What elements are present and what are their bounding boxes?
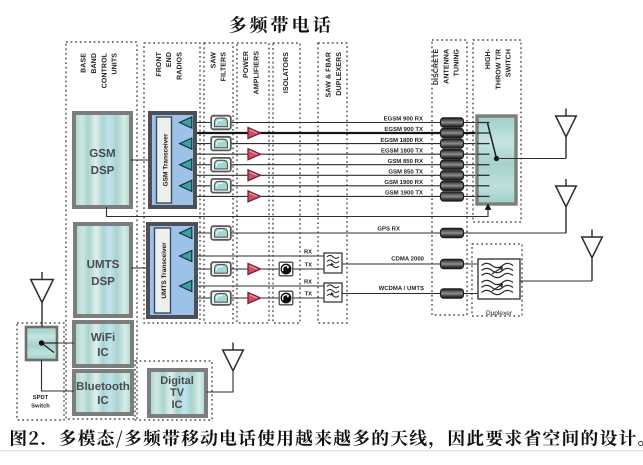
svg-text:GSM 850 RX: GSM 850 RX xyxy=(388,158,423,165)
svg-text:GPS RX: GPS RX xyxy=(377,226,400,233)
svg-text:GSM: GSM xyxy=(89,147,115,160)
svg-text:IC: IC xyxy=(172,399,183,411)
svg-text:EGSM 1800 RX: EGSM 1800 RX xyxy=(380,137,423,144)
svg-text:DSP: DSP xyxy=(91,275,115,288)
svg-text:UMTS: UMTS xyxy=(87,258,120,271)
svg-text:UMTS Transceiver: UMTS Transceiver xyxy=(161,242,168,299)
svg-text:ISOLATORS: ISOLATORS xyxy=(283,52,290,93)
svg-text:GSM 1900 TX: GSM 1900 TX xyxy=(385,190,423,197)
svg-text:TX: TX xyxy=(305,262,313,268)
svg-text:RX: RX xyxy=(304,279,312,285)
svg-text:EGSM 900 RX: EGSM 900 RX xyxy=(384,116,423,123)
svg-text:Duplexer: Duplexer xyxy=(486,310,513,317)
svg-text:WCDMA / UMTS: WCDMA / UMTS xyxy=(379,285,424,292)
svg-text:Switch: Switch xyxy=(31,403,50,410)
svg-text:SPDT: SPDT xyxy=(33,394,49,401)
svg-text:IC: IC xyxy=(97,394,109,407)
svg-text:EGSM 1800 TX: EGSM 1800 TX xyxy=(381,147,423,154)
svg-text:GSM Transceiver: GSM Transceiver xyxy=(163,133,170,186)
svg-text:DSP: DSP xyxy=(91,164,115,177)
svg-text:RX: RX xyxy=(304,249,312,255)
svg-text:IC: IC xyxy=(97,346,109,359)
svg-text:WiFi: WiFi xyxy=(91,331,115,344)
svg-text:Bluetooth: Bluetooth xyxy=(76,381,130,393)
svg-text:TV: TV xyxy=(170,387,185,399)
svg-text:EGSM 900 TX: EGSM 900 TX xyxy=(384,126,423,133)
svg-text:GSM 850 TX: GSM 850 TX xyxy=(388,169,423,176)
svg-text:Digital: Digital xyxy=(160,375,194,387)
svg-text:TX: TX xyxy=(305,291,313,297)
svg-text:CDMA 2000: CDMA 2000 xyxy=(391,256,424,263)
svg-text:GSM 1900 RX: GSM 1900 RX xyxy=(384,179,423,186)
